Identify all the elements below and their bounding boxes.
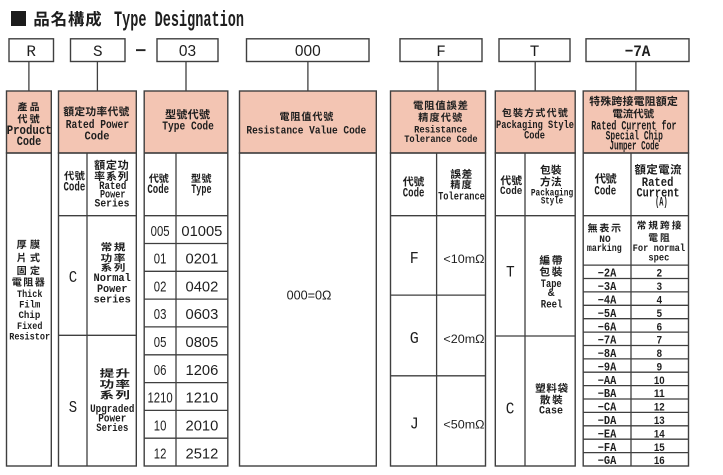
svg-text:series: series [94,294,131,306]
svg-text:&: & [548,288,555,300]
svg-text:Resistor: Resistor [9,331,50,343]
svg-text:C: C [506,400,515,419]
svg-text:Series: Series [96,423,128,435]
svg-text:Tolerance Code: Tolerance Code [404,134,477,146]
svg-text:<50mΩ: <50mΩ [443,418,484,432]
svg-text:R: R [26,43,36,61]
svg-text:Code: Code [524,130,545,142]
svg-text:05: 05 [154,335,167,351]
svg-text:Type Code: Type Code [162,120,214,134]
svg-text:Resistance Value Code: Resistance Value Code [246,126,366,138]
svg-text:Style: Style [541,196,563,208]
svg-text:1210: 1210 [148,391,173,407]
svg-text:01005: 01005 [181,224,222,240]
svg-text:01: 01 [154,252,167,268]
svg-text:000=0Ω: 000=0Ω [287,287,332,302]
svg-text:<10mΩ: <10mΩ [443,252,484,266]
svg-text:03: 03 [179,43,196,60]
svg-text:2010: 2010 [186,419,219,435]
svg-text:G: G [410,330,419,349]
svg-text:Code: Code [147,182,169,197]
svg-text:T: T [506,264,515,282]
svg-text:−7A: −7A [625,43,651,61]
svg-text:1210: 1210 [186,391,219,407]
svg-text:Reel: Reel [541,300,563,312]
svg-text:005: 005 [151,224,170,240]
svg-text:Type Designation: Type Designation [114,8,244,33]
svg-text:J: J [410,416,419,435]
svg-text:Type: Type [191,182,211,197]
svg-text:000: 000 [295,43,321,60]
svg-text:Series: Series [95,198,130,210]
svg-text:12: 12 [154,446,167,462]
svg-text:F: F [436,43,446,61]
svg-text:Code: Code [17,134,42,149]
svg-text:marking: marking [587,243,622,255]
svg-text:S: S [69,399,77,418]
svg-text:0805: 0805 [186,335,219,351]
svg-text:0201: 0201 [186,252,219,268]
svg-text:06: 06 [154,363,167,379]
svg-text:2512: 2512 [186,446,219,462]
svg-text:Code: Code [403,186,425,201]
svg-text:(A): (A) [655,195,668,210]
svg-text:10: 10 [154,419,167,435]
svg-text:Code: Code [500,186,522,198]
svg-text:Case: Case [539,406,563,418]
svg-text:16: 16 [654,455,665,467]
svg-text:F: F [410,250,419,269]
svg-text:Code: Code [85,129,110,143]
svg-text:−GA: −GA [598,455,617,468]
svg-text:Code: Code [594,185,616,199]
svg-text:Code: Code [63,181,85,195]
svg-text:spec: spec [648,253,669,264]
svg-text:Tolerance: Tolerance [438,191,485,203]
svg-text:02: 02 [154,279,167,295]
svg-text:T: T [530,43,540,61]
svg-text:0402: 0402 [186,279,219,295]
svg-text:1206: 1206 [186,363,219,379]
svg-text:03: 03 [154,307,167,323]
svg-text:Jumper Code: Jumper Code [609,139,659,153]
svg-text:0603: 0603 [186,307,219,323]
svg-text:C: C [69,269,77,288]
svg-text:<20mΩ: <20mΩ [443,332,484,346]
svg-text:S: S [93,43,103,61]
